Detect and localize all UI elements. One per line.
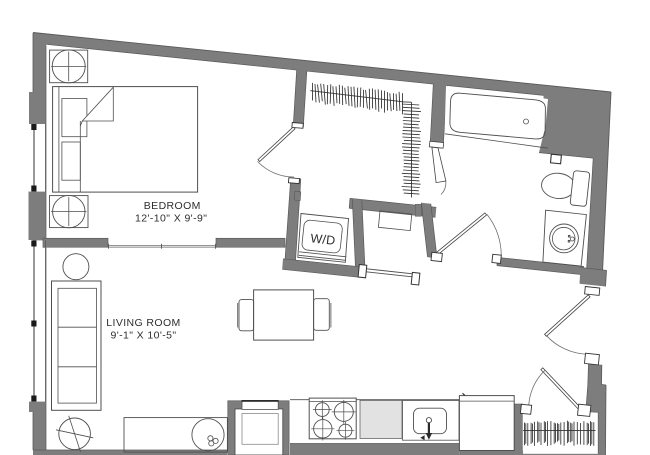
svg-text:BEDROOM: BEDROOM xyxy=(144,200,201,212)
svg-text:12'-10" X 9'-9": 12'-10" X 9'-9" xyxy=(135,213,207,225)
svg-text:W/D: W/D xyxy=(310,231,336,248)
svg-text:LIVING ROOM: LIVING ROOM xyxy=(106,317,180,329)
svg-text:9'-1" X 10'-5": 9'-1" X 10'-5" xyxy=(110,330,176,342)
